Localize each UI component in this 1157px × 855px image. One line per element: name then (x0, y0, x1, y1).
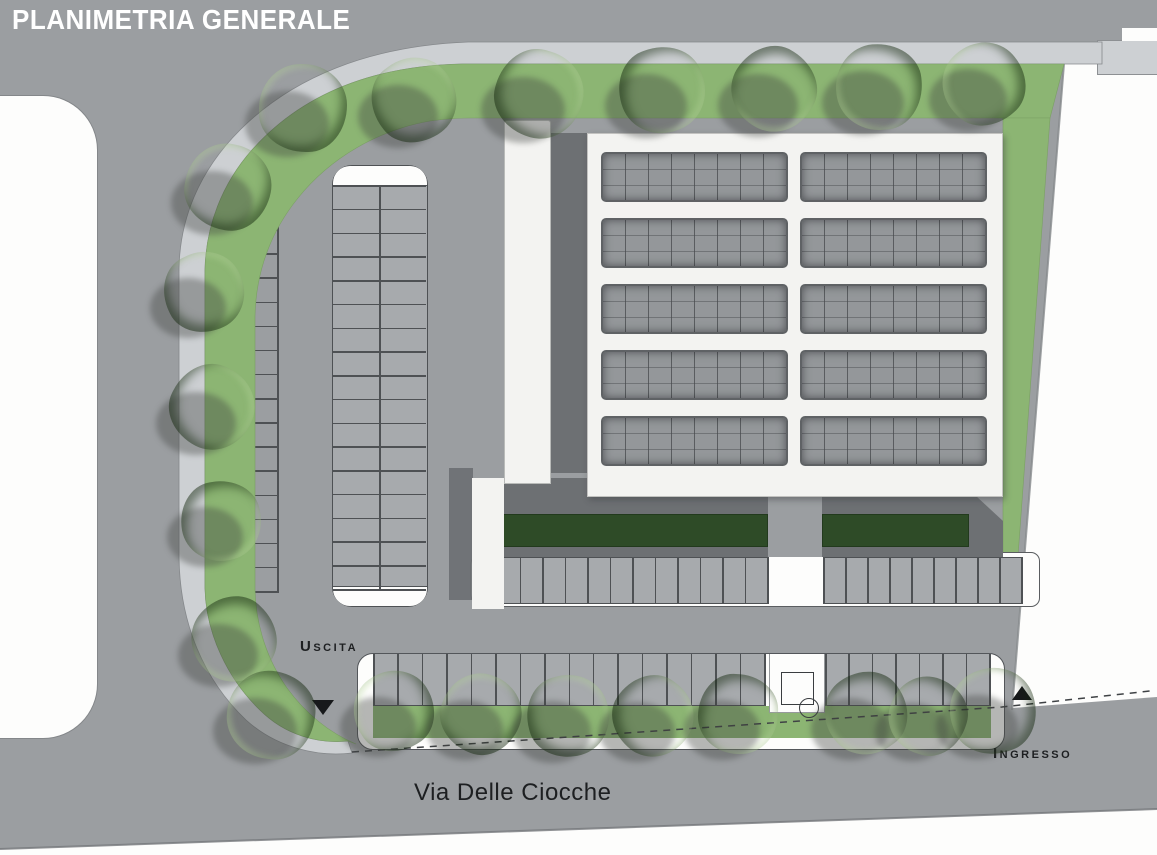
parking-stall-line (691, 654, 693, 705)
roof-skylight-panel (601, 350, 788, 400)
street-name-label: Via Delle Ciocche (414, 779, 612, 807)
parking-stall-line (867, 558, 869, 603)
roof-skylight-panel (800, 218, 987, 268)
parking-stall-line (230, 567, 279, 569)
parking-stall-line (565, 558, 567, 603)
circle-in-square-icon (781, 672, 814, 705)
roof-skylight-panel (800, 284, 987, 334)
roof-skylight-panel (601, 218, 788, 268)
parking-stall-line (889, 558, 891, 603)
roof-skylight-panel (601, 284, 788, 334)
parking-stall-line (677, 558, 679, 603)
parking-row-north (470, 552, 1040, 607)
roof-skylight-panel (601, 152, 788, 202)
parking-stall-line (277, 181, 279, 591)
roof-skylight-panel (800, 350, 987, 400)
parking-stall-line (745, 558, 747, 603)
parking-stall-line (955, 558, 957, 603)
sidewalk-step-northeast (1097, 40, 1157, 75)
parking-stall-line (977, 558, 979, 603)
adjacent-lot-west (0, 95, 98, 739)
parking-island (332, 165, 428, 607)
parking-stall-line (911, 558, 913, 603)
parking-stall-line (230, 253, 279, 255)
parking-stall-line (722, 558, 724, 603)
parking-stall-line (1021, 558, 1023, 603)
parking-stall-line (655, 558, 657, 603)
building-main-roof (587, 133, 1003, 497)
pedestrian-crossing-path (768, 496, 822, 557)
roof-skylight-panel (800, 152, 987, 202)
parking-stall-line (230, 591, 279, 593)
exit-label: Uscita (300, 638, 358, 655)
parking-stall-line (767, 558, 769, 603)
parking-stalls-north-right (823, 557, 1023, 604)
parking-stall-line (333, 589, 426, 591)
roof-skylight-panel (601, 416, 788, 466)
parking-stall-line (520, 558, 522, 603)
site-plan: Uscita Ingresso Via Delle Ciocche PLANIM… (0, 0, 1157, 855)
tree (259, 64, 347, 152)
island-end-cap (333, 166, 427, 186)
parking-stall-line (230, 350, 279, 352)
parking-stall-line (700, 558, 702, 603)
parking-stall-line (845, 558, 847, 603)
building-office-wing (504, 120, 551, 484)
parking-stall-line (520, 654, 522, 705)
hedge-south-left (503, 514, 768, 547)
parking-stall-line (933, 558, 935, 603)
parking-stalls-north-left (497, 557, 769, 604)
parking-stall-line (999, 558, 1001, 603)
parking-stall-line (230, 326, 279, 328)
parking-stall-line (632, 558, 634, 603)
building-west-wall (551, 133, 587, 473)
island-center-line (379, 185, 381, 589)
tree (697, 673, 778, 754)
building-shadow (449, 468, 473, 600)
roof-skylight-panel (800, 416, 987, 466)
parking-stall-line (610, 558, 612, 603)
parking-stall-line (542, 558, 544, 603)
curb-notch-northeast (1122, 28, 1157, 41)
walkway-west (472, 478, 504, 609)
parking-stall-line (230, 446, 279, 448)
parking-stall-line (230, 470, 279, 472)
hedge-south-right (822, 514, 969, 547)
parking-stall-line (587, 558, 589, 603)
parking-stall-line (823, 558, 825, 603)
page-title: PLANIMETRIA GENERALE (12, 3, 350, 36)
